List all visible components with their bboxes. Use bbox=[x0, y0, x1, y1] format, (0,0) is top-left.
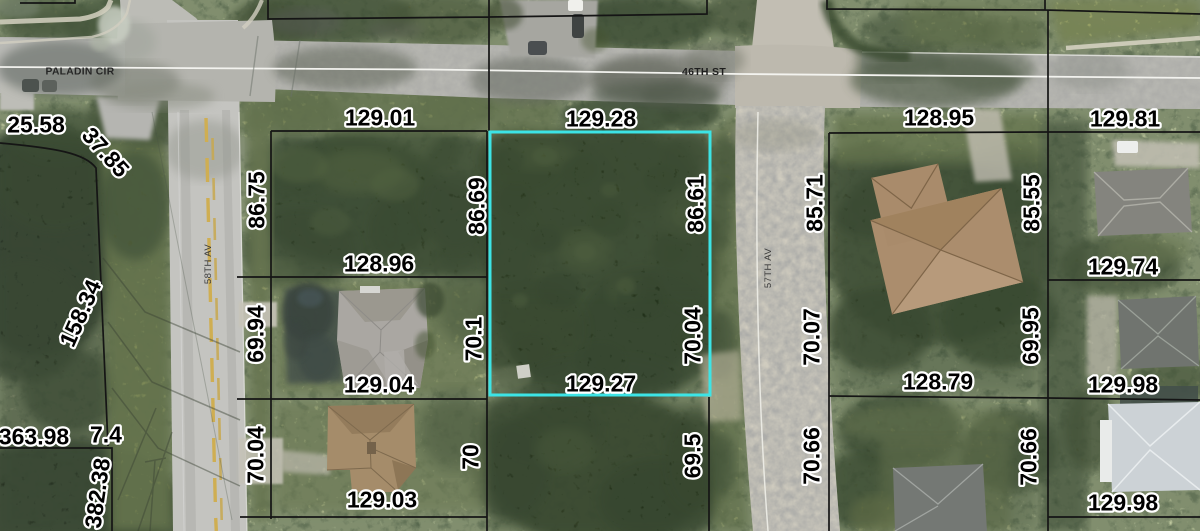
svg-text:PALADIN CIR: PALADIN CIR bbox=[46, 67, 115, 78]
svg-text:70.66: 70.66 bbox=[1015, 428, 1041, 486]
svg-text:128.96: 128.96 bbox=[344, 250, 414, 276]
svg-text:129.81: 129.81 bbox=[1090, 105, 1161, 131]
svg-text:129.27: 129.27 bbox=[566, 370, 636, 396]
svg-text:85.71: 85.71 bbox=[801, 174, 827, 232]
svg-text:69.94: 69.94 bbox=[242, 305, 268, 363]
svg-text:70: 70 bbox=[457, 444, 483, 470]
svg-text:7.4: 7.4 bbox=[90, 421, 122, 447]
svg-text:70.66: 70.66 bbox=[798, 427, 824, 485]
svg-text:363.98: 363.98 bbox=[0, 423, 69, 449]
svg-text:129.98: 129.98 bbox=[1088, 371, 1159, 397]
svg-text:70.1: 70.1 bbox=[460, 316, 486, 361]
svg-text:46TH ST: 46TH ST bbox=[682, 66, 726, 78]
svg-text:70.07: 70.07 bbox=[798, 308, 824, 366]
svg-text:57TH AV: 57TH AV bbox=[763, 248, 774, 288]
svg-text:129.03: 129.03 bbox=[347, 486, 417, 512]
svg-text:70.04: 70.04 bbox=[679, 307, 705, 365]
svg-text:128.79: 128.79 bbox=[903, 368, 973, 394]
svg-text:25.58: 25.58 bbox=[7, 111, 65, 137]
svg-text:69.5: 69.5 bbox=[679, 433, 705, 478]
svg-text:129.98: 129.98 bbox=[1088, 489, 1159, 515]
svg-text:129.28: 129.28 bbox=[566, 105, 637, 131]
svg-text:86.61: 86.61 bbox=[682, 175, 708, 233]
svg-text:85.55: 85.55 bbox=[1018, 174, 1044, 232]
svg-text:70.04: 70.04 bbox=[242, 426, 268, 484]
svg-text:129.74: 129.74 bbox=[1088, 253, 1159, 279]
svg-text:86.75: 86.75 bbox=[243, 171, 269, 229]
svg-text:86.69: 86.69 bbox=[463, 177, 489, 235]
svg-text:69.95: 69.95 bbox=[1017, 307, 1043, 365]
svg-text:129.04: 129.04 bbox=[344, 371, 415, 397]
svg-text:58TH AV: 58TH AV bbox=[203, 244, 214, 284]
svg-text:129.01: 129.01 bbox=[345, 104, 416, 130]
svg-text:128.95: 128.95 bbox=[904, 104, 975, 130]
